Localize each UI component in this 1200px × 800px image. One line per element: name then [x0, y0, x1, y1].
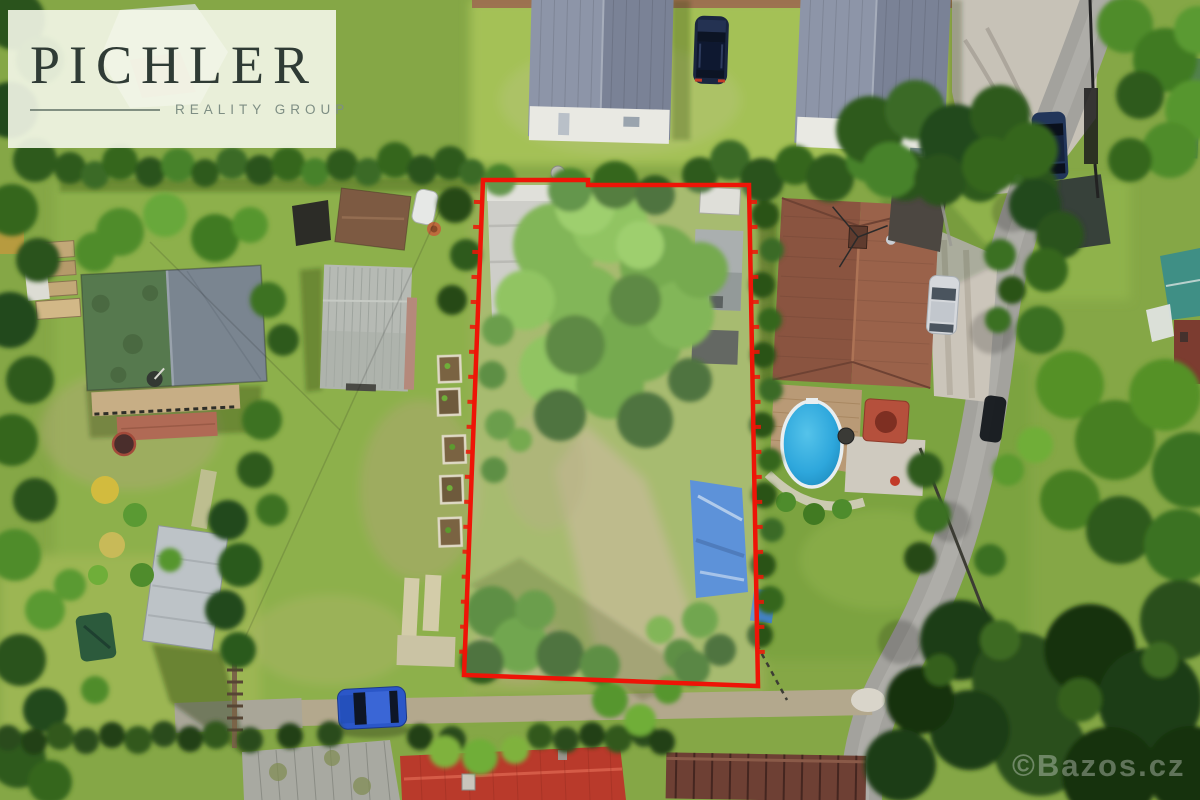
- agency-logo: PICHLER REALITY GROUP: [8, 10, 336, 148]
- red-mower: [890, 476, 900, 486]
- fire-pit: [113, 433, 135, 455]
- agency-brand-name: PICHLER: [30, 37, 316, 94]
- gray-barn: [320, 265, 418, 393]
- plot-highlight: [464, 180, 758, 686]
- black-gate: [1084, 88, 1098, 164]
- above-ground-pool: [782, 401, 842, 487]
- black-lean-to: [292, 200, 331, 246]
- pool-ladder: [806, 398, 818, 404]
- gravel-patch: [851, 688, 885, 712]
- stone-patio: [396, 635, 455, 667]
- plank-fence: [666, 752, 867, 800]
- brown-shed: [335, 188, 411, 250]
- aerial-photo: PICHLER REALITY GROUP ©Bazos.cz: [0, 0, 1200, 800]
- mobile-home-1: [528, 0, 674, 144]
- silver-car: [926, 275, 960, 335]
- grill: [838, 428, 854, 444]
- stepping-stones: [401, 578, 419, 637]
- logo-divider-line: [30, 109, 160, 111]
- utility-pole: [232, 660, 237, 748]
- hot-tub: [863, 399, 910, 444]
- portal-watermark: ©Bazos.cz: [1012, 748, 1186, 784]
- plot-boundary: [463, 180, 761, 686]
- agency-tagline: REALITY GROUP: [175, 102, 349, 117]
- suv-on-lawn: [693, 15, 729, 84]
- blue-hatchback: [337, 686, 407, 730]
